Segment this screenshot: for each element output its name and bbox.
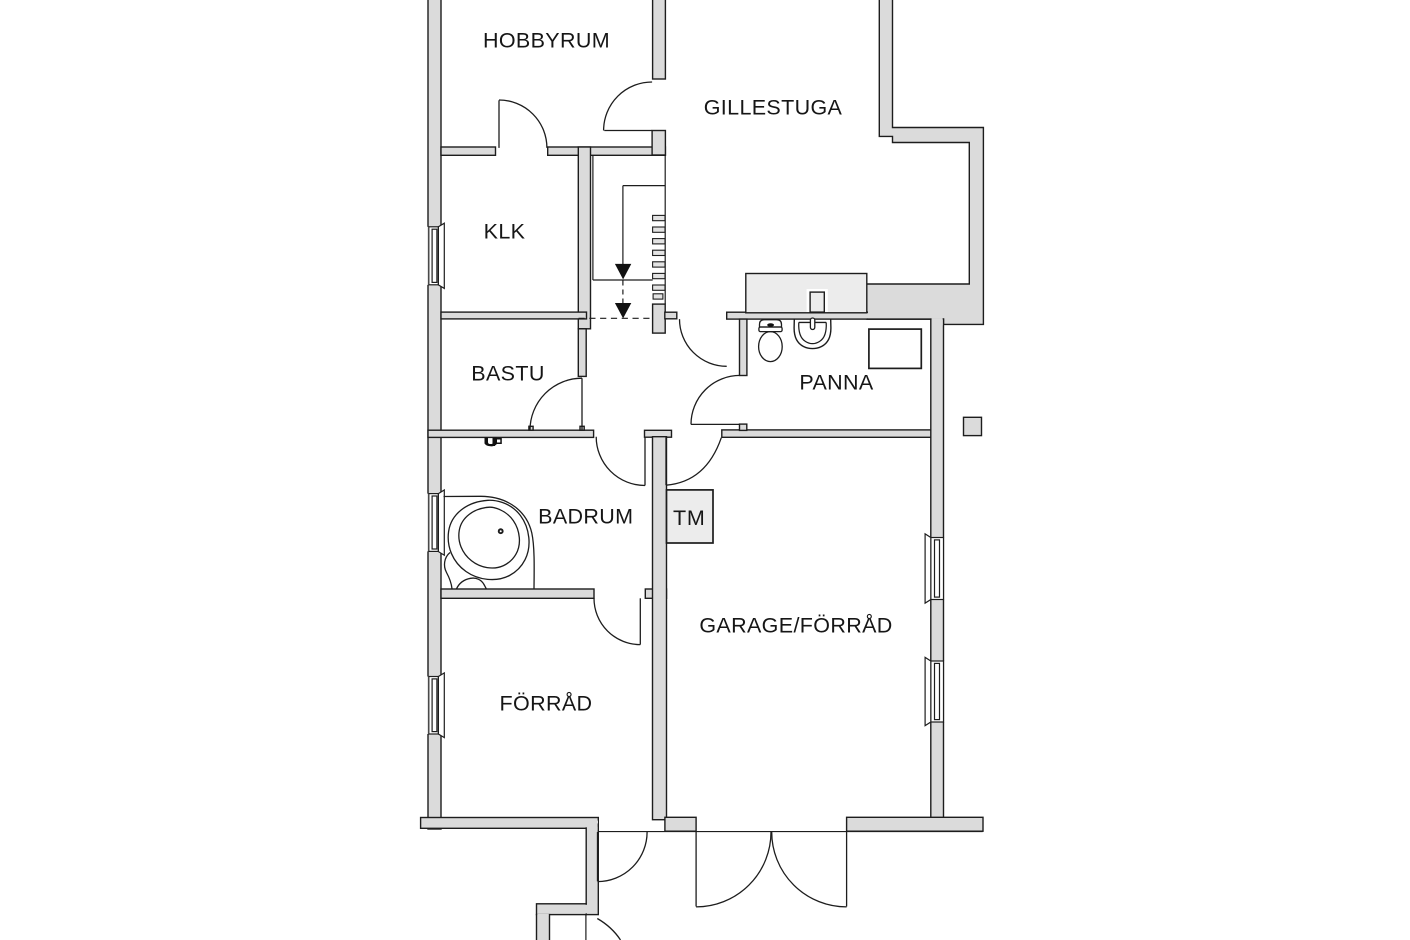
svg-text:HOBBYRUM: HOBBYRUM	[483, 28, 610, 52]
svg-text:FÖRRÅD: FÖRRÅD	[500, 691, 593, 715]
svg-text:GARAGE/FÖRRÅD: GARAGE/FÖRRÅD	[699, 613, 892, 637]
svg-text:KLK: KLK	[484, 219, 526, 243]
svg-text:TM: TM	[673, 506, 706, 530]
svg-text:BADRUM: BADRUM	[538, 504, 633, 528]
svg-text:BASTU: BASTU	[471, 361, 544, 385]
svg-text:GILLESTUGA: GILLESTUGA	[704, 95, 843, 119]
svg-text:PANNA: PANNA	[799, 370, 874, 394]
